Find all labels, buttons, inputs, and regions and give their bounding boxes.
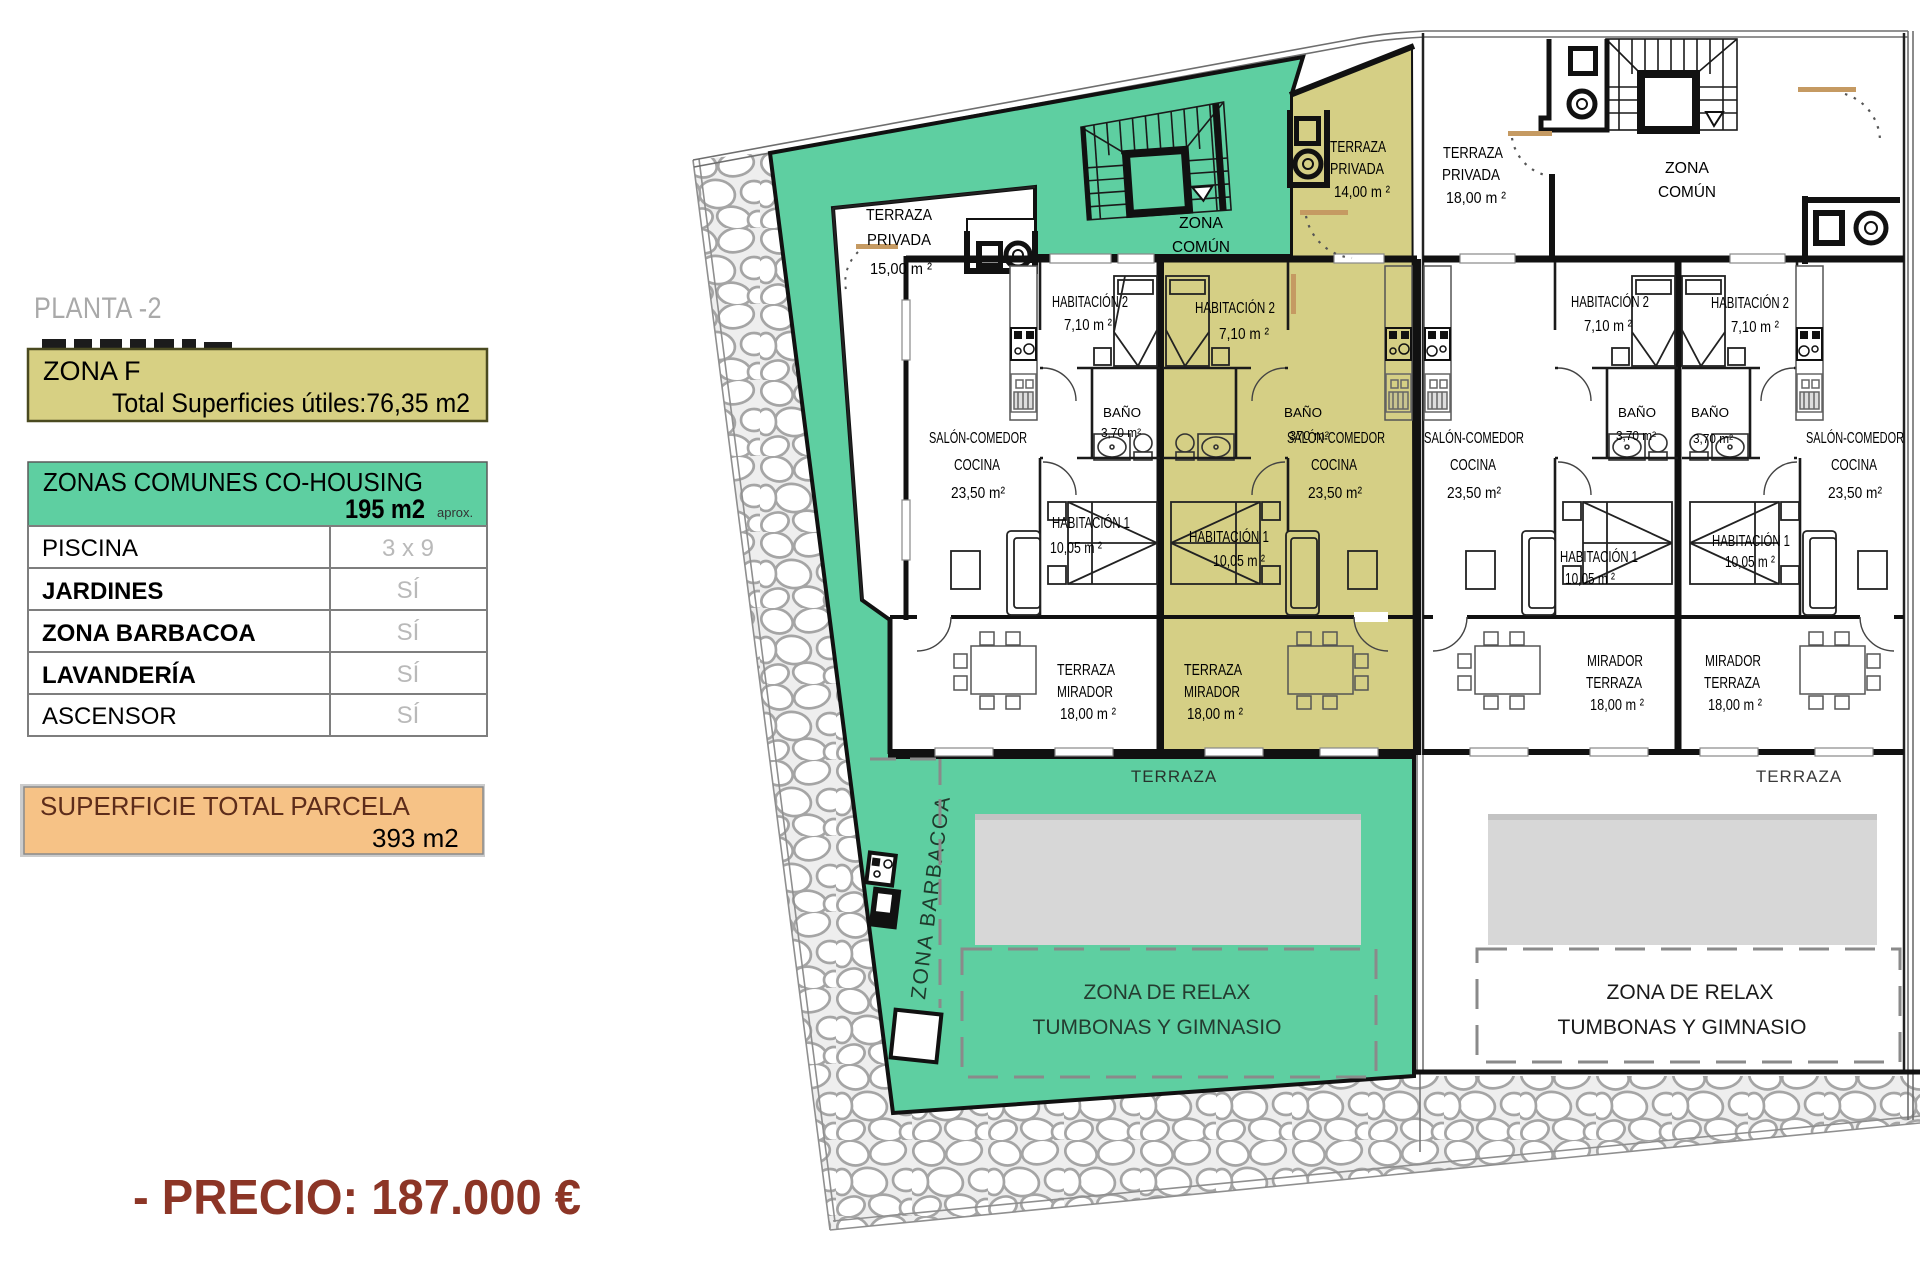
svg-text:SÍ: SÍ — [397, 619, 420, 646]
svg-text:TERRAZA: TERRAZA — [1586, 675, 1642, 692]
svg-text:SALÓN-COMEDOR: SALÓN-COMEDOR — [1287, 428, 1385, 447]
svg-text:BAÑO: BAÑO — [1618, 405, 1656, 420]
svg-text:23,50 m²: 23,50 m² — [951, 485, 1006, 502]
svg-text:SÍ: SÍ — [397, 661, 420, 688]
svg-text:HABITACIÓN 1: HABITACIÓN 1 — [1560, 547, 1638, 566]
svg-text:SALÓN-COMEDOR: SALÓN-COMEDOR — [929, 428, 1027, 447]
svg-text:HABITACIÓN 1: HABITACIÓN 1 — [1189, 527, 1269, 546]
svg-text:MIRADOR: MIRADOR — [1705, 653, 1761, 670]
svg-text:393 m2: 393 m2 — [372, 823, 459, 853]
svg-text:SALÓN-COMEDOR: SALÓN-COMEDOR — [1424, 428, 1524, 447]
svg-text:COCINA: COCINA — [1450, 457, 1496, 474]
svg-text:JARDINES: JARDINES — [42, 578, 163, 605]
svg-text:PRIVADA: PRIVADA — [1442, 167, 1500, 184]
svg-text:MIRADOR: MIRADOR — [1587, 653, 1643, 670]
svg-text:SÍ: SÍ — [397, 577, 420, 604]
svg-text:ZONA: ZONA — [1665, 160, 1709, 177]
svg-text:BAÑO: BAÑO — [1284, 405, 1322, 420]
svg-text:TERRAZA: TERRAZA — [1704, 675, 1760, 692]
svg-text:LAVANDERÍA: LAVANDERÍA — [42, 661, 196, 689]
svg-text:ZONA BARBACOA: ZONA BARBACOA — [42, 620, 256, 647]
svg-text:3,70 m²: 3,70 m² — [1616, 428, 1657, 443]
svg-text:18,00 m ²: 18,00 m ² — [1446, 190, 1507, 207]
svg-text:3 x 9: 3 x 9 — [382, 535, 434, 562]
svg-text:Total Superficies útiles:76,35: Total Superficies útiles:76,35 m2 — [112, 388, 470, 418]
svg-text:TUMBONAS Y GIMNASIO: TUMBONAS Y GIMNASIO — [1558, 1016, 1807, 1039]
svg-text:ZONA: ZONA — [1179, 215, 1223, 232]
svg-text:HABITACIÓN 1: HABITACIÓN 1 — [1052, 513, 1130, 532]
svg-text:SALÓN-COMEDOR: SALÓN-COMEDOR — [1806, 428, 1904, 447]
svg-text:HABITACIÓN 2: HABITACIÓN 2 — [1052, 292, 1128, 311]
svg-text:18,00 m ²: 18,00 m ² — [1590, 697, 1645, 714]
svg-text:TERRAZA: TERRAZA — [1184, 662, 1242, 679]
svg-text:COMÚN: COMÚN — [1658, 182, 1716, 201]
svg-text:ZONA DE RELAX: ZONA DE RELAX — [1084, 981, 1251, 1004]
svg-text:10,05 m ²: 10,05 m ² — [1050, 540, 1103, 557]
svg-text:23,50 m²: 23,50 m² — [1308, 485, 1363, 502]
svg-text:ZONA F: ZONA F — [43, 356, 141, 386]
svg-text:195 m2: 195 m2 — [345, 494, 425, 524]
svg-text:MIRADOR: MIRADOR — [1184, 684, 1240, 701]
svg-text:7,10 m ²: 7,10 m ² — [1584, 318, 1633, 335]
svg-text:HABITACIÓN 2: HABITACIÓN 2 — [1711, 293, 1789, 312]
svg-text:10,05 m ²: 10,05 m ² — [1213, 553, 1266, 570]
svg-text:SUPERFICIE TOTAL PARCELA: SUPERFICIE TOTAL PARCELA — [40, 791, 411, 821]
svg-text:PISCINA: PISCINA — [42, 535, 138, 562]
svg-text:TERRAZA: TERRAZA — [1330, 139, 1386, 156]
svg-text:MIRADOR: MIRADOR — [1057, 684, 1113, 701]
svg-text:7,10 m ²: 7,10 m ² — [1064, 317, 1113, 334]
svg-text:18,00 m ²: 18,00 m ² — [1708, 697, 1763, 714]
svg-text:PRIVADA: PRIVADA — [1330, 161, 1384, 178]
svg-text:PRIVADA: PRIVADA — [867, 232, 931, 249]
svg-text:18,00 m ²: 18,00 m ² — [1187, 706, 1244, 723]
svg-text:ASCENSOR: ASCENSOR — [42, 703, 177, 730]
svg-text:TUMBONAS Y GIMNASIO: TUMBONAS Y GIMNASIO — [1033, 1016, 1282, 1039]
svg-text:BAÑO: BAÑO — [1691, 405, 1729, 420]
svg-text:TERRAZA: TERRAZA — [1756, 767, 1842, 786]
svg-text:COCINA: COCINA — [954, 457, 1000, 474]
svg-text:3,70 m²: 3,70 m² — [1693, 431, 1734, 446]
svg-text:HABITACIÓN 2: HABITACIÓN 2 — [1571, 292, 1649, 311]
svg-text:- PRECIO: 187.000 €: - PRECIO: 187.000 € — [133, 1171, 581, 1225]
svg-text:TERRAZA: TERRAZA — [866, 207, 932, 224]
svg-text:TERRAZA: TERRAZA — [1131, 767, 1217, 786]
svg-text:SÍ: SÍ — [397, 702, 420, 729]
svg-text:18,00 m ²: 18,00 m ² — [1060, 706, 1117, 723]
svg-text:TERRAZA: TERRAZA — [1057, 662, 1115, 679]
svg-text:23,50 m²: 23,50 m² — [1828, 485, 1883, 502]
svg-text:HABITACIÓN 1: HABITACIÓN 1 — [1712, 531, 1790, 550]
svg-text:aprox.: aprox. — [437, 505, 473, 520]
svg-text:ZONAS COMUNES CO-HOUSING: ZONAS COMUNES CO-HOUSING — [43, 467, 423, 497]
svg-text:BAÑO: BAÑO — [1103, 405, 1141, 420]
svg-text:7,10 m ²: 7,10 m ² — [1219, 326, 1270, 343]
svg-text:COMÚN: COMÚN — [1172, 237, 1230, 256]
svg-text:3,70 m²: 3,70 m² — [1101, 425, 1142, 440]
svg-text:COCINA: COCINA — [1311, 457, 1357, 474]
svg-text:10,05 m ²: 10,05 m ² — [1725, 554, 1775, 571]
svg-text:10,05 m ²: 10,05 m ² — [1565, 571, 1615, 588]
svg-text:COCINA: COCINA — [1831, 457, 1877, 474]
svg-text:PLANTA -2: PLANTA -2 — [34, 292, 162, 325]
svg-text:15,00 m ²: 15,00 m ² — [870, 261, 933, 278]
svg-text:HABITACIÓN 2: HABITACIÓN 2 — [1195, 298, 1275, 317]
svg-text:14,00 m ²: 14,00 m ² — [1334, 184, 1391, 201]
svg-text:23,50 m²: 23,50 m² — [1447, 485, 1502, 502]
svg-text:ZONA DE RELAX: ZONA DE RELAX — [1607, 981, 1774, 1004]
svg-text:TERRAZA: TERRAZA — [1443, 145, 1503, 162]
svg-text:7,10 m ²: 7,10 m ² — [1731, 319, 1780, 336]
